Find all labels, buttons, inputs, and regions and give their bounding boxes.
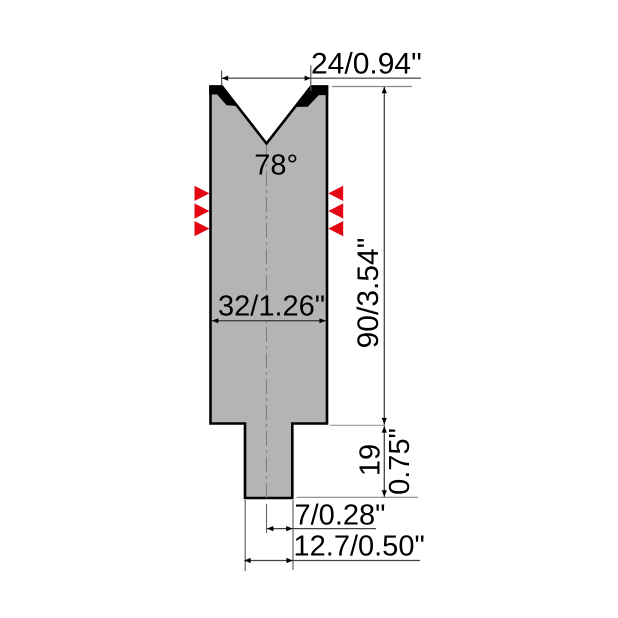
svg-text:90/3.54": 90/3.54" (352, 238, 385, 349)
svg-text:0.75": 0.75" (384, 428, 416, 495)
svg-text:78°: 78° (254, 149, 298, 181)
svg-text:7/0.28": 7/0.28" (295, 500, 386, 532)
svg-text:24/0.94": 24/0.94" (311, 48, 422, 81)
svg-text:19: 19 (355, 444, 387, 476)
svg-text:12.7/0.50": 12.7/0.50" (294, 531, 425, 563)
svg-text:32/1.26": 32/1.26" (218, 291, 325, 323)
